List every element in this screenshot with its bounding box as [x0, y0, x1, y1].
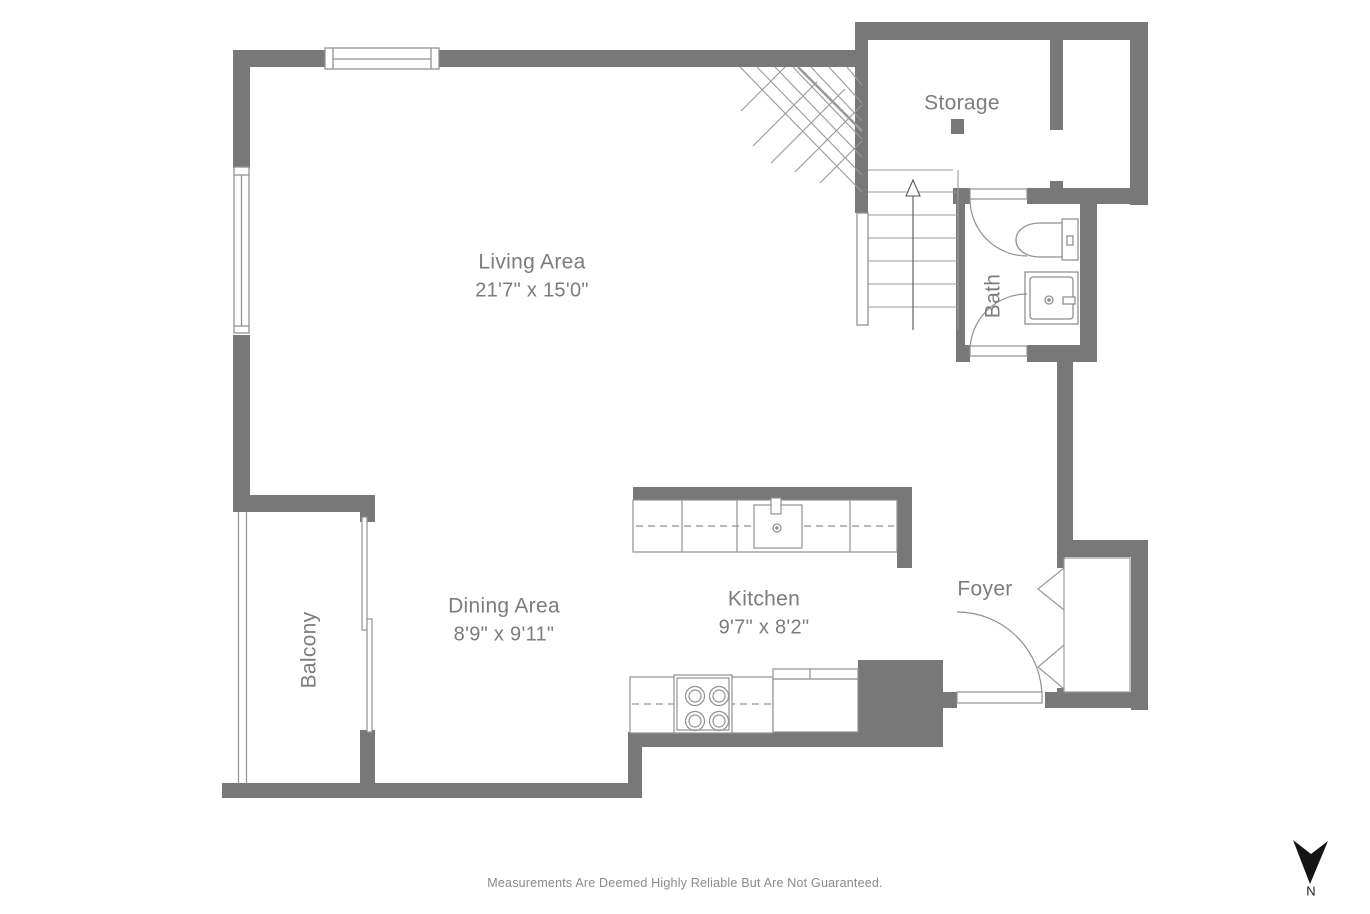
wall-topblock-right — [1130, 40, 1148, 205]
bathroom-sink-icon — [1025, 272, 1078, 324]
room-name: Bath — [980, 274, 1009, 318]
room-name: Dining Area — [448, 593, 560, 622]
room-dims: 9'7" x 8'2" — [719, 615, 810, 643]
floorplan-drawing — [0, 0, 1370, 914]
wall-left-lower — [233, 335, 250, 512]
wall-bath-bottom-left — [956, 345, 970, 362]
wall-storage-divider-stub — [1050, 181, 1063, 189]
wall-left-upper — [233, 50, 250, 168]
wall-bath-left — [956, 188, 965, 362]
balcony-label: Balcony — [296, 612, 325, 689]
toilet-icon — [1016, 219, 1078, 260]
living-area-label: Living Area 21'7" x 15'0" — [475, 249, 589, 306]
storage-post — [951, 119, 964, 134]
dining-area-label: Dining Area 8'9" x 9'11" — [448, 593, 560, 650]
wall-balcony-stub-lower — [360, 730, 375, 783]
floor-plan-page: Living Area 21'7" x 15'0" Dining Area 8'… — [0, 0, 1370, 914]
wall-storage-divider — [1050, 40, 1063, 130]
room-name: Foyer — [957, 576, 1012, 605]
kitchen-counter-bottom — [630, 669, 858, 733]
balcony-railing — [239, 512, 247, 783]
wall-bath-right — [1080, 188, 1097, 362]
wall-closet-right — [1131, 540, 1148, 710]
storage-label: Storage — [924, 90, 1000, 119]
room-dims: 21'7" x 15'0" — [475, 278, 589, 306]
room-dims: 8'9" x 9'11" — [448, 622, 560, 650]
room-name: Storage — [924, 90, 1000, 119]
kitchen-sink-icon — [754, 498, 802, 548]
wall-bottom — [222, 783, 642, 798]
room-name: Balcony — [296, 612, 325, 689]
north-label: N — [1306, 884, 1315, 899]
room-name: Kitchen — [719, 586, 810, 615]
bath-label: Bath — [980, 274, 1009, 318]
stair-railing — [857, 213, 868, 325]
wall-storage-top — [855, 22, 1148, 40]
kitchen-label: Kitchen 9'7" x 8'2" — [719, 586, 810, 643]
doors — [957, 189, 1042, 703]
wall-foyer-bottom-left — [943, 692, 957, 708]
window-left-icon — [234, 167, 249, 333]
bath-fixtures — [1016, 219, 1078, 324]
bifold-door-upper-icon — [1038, 568, 1064, 610]
wall-balcony-divider — [233, 495, 375, 512]
room-name: Living Area — [475, 249, 589, 278]
foyer-closet — [1038, 558, 1130, 692]
sliding-door-icon — [362, 517, 372, 732]
foyer-label: Foyer — [957, 576, 1012, 605]
stair-hatch — [740, 67, 862, 192]
window-top-icon — [325, 48, 439, 69]
entry-door-icon — [957, 612, 1042, 703]
wall-kitchen-bottom — [642, 732, 858, 747]
stove-icon — [674, 675, 732, 733]
disclaimer-text: Measurements Are Deemed Highly Reliable … — [487, 876, 882, 890]
refrigerator-icon — [773, 669, 858, 732]
north-arrow-icon — [1293, 840, 1328, 884]
wall-bath-bottom-right — [1027, 345, 1097, 362]
wall-corridor-right — [1057, 362, 1073, 540]
wall-kitchen-foyer-mass — [858, 660, 943, 747]
closet-interior — [1064, 558, 1130, 692]
bifold-door-lower-icon — [1038, 645, 1064, 689]
kitchen-counter-top — [633, 498, 897, 552]
